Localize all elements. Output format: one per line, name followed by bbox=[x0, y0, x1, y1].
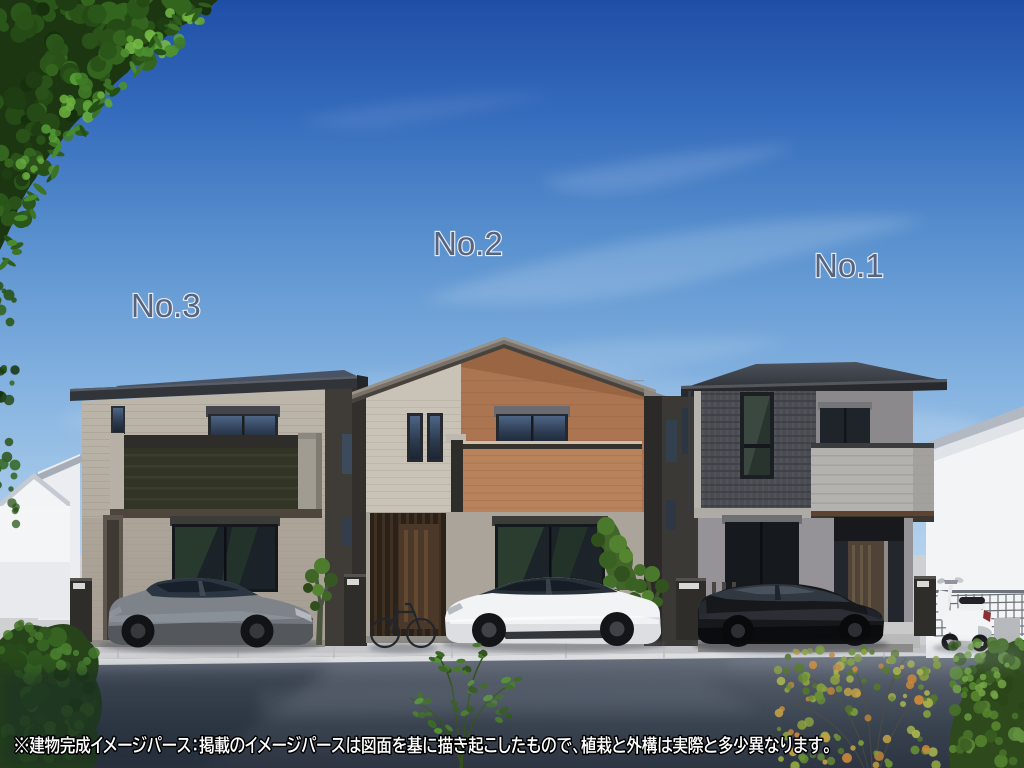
svg-text:No.1: No.1 bbox=[814, 247, 884, 284]
svg-text:No.3: No.3 bbox=[131, 287, 201, 324]
svg-text:No.2: No.2 bbox=[433, 225, 503, 262]
